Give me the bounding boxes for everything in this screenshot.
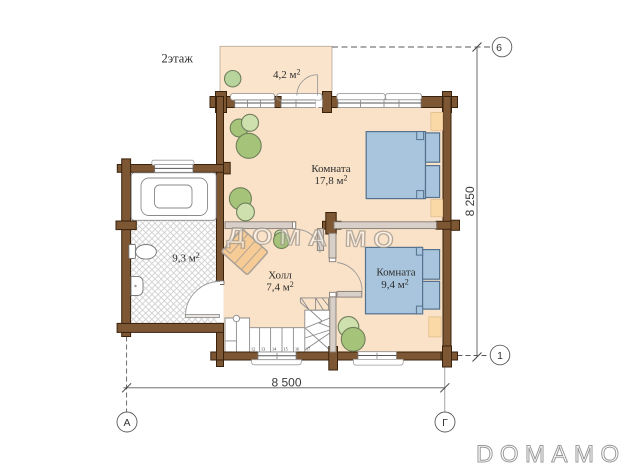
svg-text:12: 12 — [251, 347, 255, 352]
svg-text:8 500: 8 500 — [272, 375, 302, 389]
svg-text:ДОМАМО: ДОМАМО — [226, 224, 401, 254]
svg-text:7,4 м2: 7,4 м2 — [266, 280, 293, 294]
svg-text:Комната: Комната — [376, 267, 415, 279]
svg-text:Холл: Холл — [268, 270, 292, 282]
svg-text:DOMAMO: DOMAMO — [476, 441, 626, 468]
svg-text:15: 15 — [284, 347, 288, 352]
svg-text:13: 13 — [261, 347, 265, 352]
svg-text:2этаж: 2этаж — [162, 52, 194, 66]
svg-text:1: 1 — [497, 350, 503, 362]
svg-text:6: 6 — [496, 42, 502, 54]
svg-text:4,2 м2: 4,2 м2 — [273, 68, 300, 82]
svg-text:9,3 м2: 9,3 м2 — [172, 251, 199, 265]
svg-text:17,8 м2: 17,8 м2 — [315, 174, 348, 188]
svg-text:9,4 м2: 9,4 м2 — [381, 278, 408, 292]
svg-text:17: 17 — [306, 347, 310, 352]
svg-text:Г: Г — [442, 417, 448, 429]
svg-text:8 250: 8 250 — [463, 186, 477, 216]
svg-text:16: 16 — [295, 347, 299, 352]
svg-text:А: А — [123, 417, 130, 429]
